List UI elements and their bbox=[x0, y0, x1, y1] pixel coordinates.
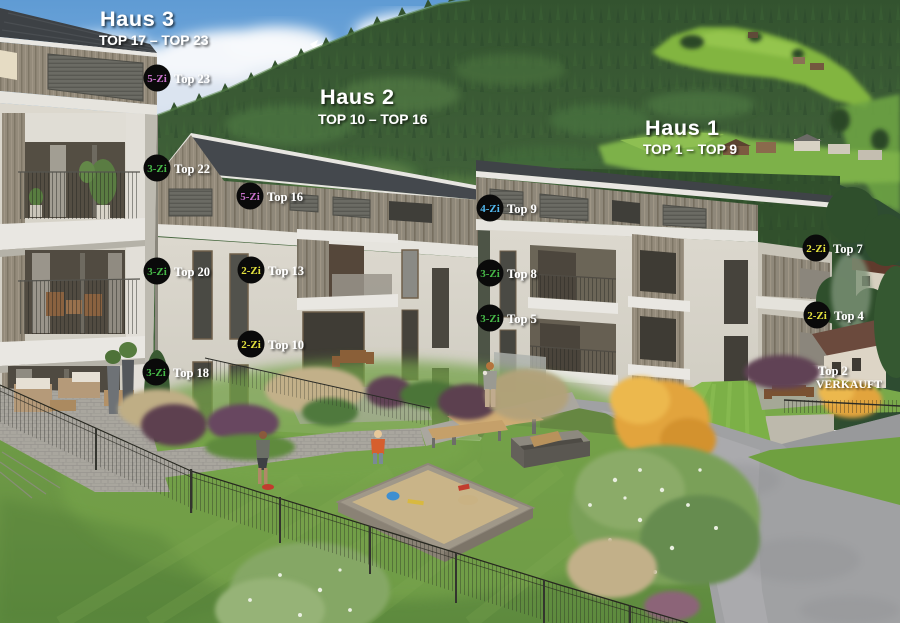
svg-text:VERKAUFT: VERKAUFT bbox=[816, 379, 882, 391]
svg-text:5-Zi: 5-Zi bbox=[240, 191, 260, 203]
svg-text:2-Zi: 2-Zi bbox=[807, 310, 827, 322]
svg-text:2-Zi: 2-Zi bbox=[241, 339, 261, 351]
svg-text:2-Zi: 2-Zi bbox=[806, 243, 826, 255]
svg-text:Top 13: Top 13 bbox=[268, 264, 304, 278]
svg-text:2-Zi: 2-Zi bbox=[241, 265, 261, 277]
svg-text:Haus 2: Haus 2 bbox=[320, 85, 395, 109]
svg-text:3-Zi: 3-Zi bbox=[146, 367, 166, 379]
svg-text:Top 20: Top 20 bbox=[174, 265, 210, 279]
svg-text:Top 9: Top 9 bbox=[507, 202, 537, 216]
svg-text:Haus 3: Haus 3 bbox=[100, 7, 175, 31]
svg-text:3-Zi: 3-Zi bbox=[480, 313, 500, 325]
svg-text:3-Zi: 3-Zi bbox=[147, 163, 167, 175]
svg-text:Top 2: Top 2 bbox=[818, 364, 848, 378]
svg-text:TOP 10 – TOP 16: TOP 10 – TOP 16 bbox=[318, 112, 428, 127]
svg-text:3-Zi: 3-Zi bbox=[480, 268, 500, 280]
svg-text:Top 4: Top 4 bbox=[834, 309, 865, 323]
svg-text:Haus 1: Haus 1 bbox=[645, 116, 720, 140]
svg-text:3-Zi: 3-Zi bbox=[147, 266, 167, 278]
svg-text:Top 10: Top 10 bbox=[268, 338, 304, 352]
svg-text:Top 22: Top 22 bbox=[174, 162, 210, 176]
svg-text:4-Zi: 4-Zi bbox=[480, 203, 500, 215]
svg-text:TOP 17 – TOP 23: TOP 17 – TOP 23 bbox=[99, 33, 209, 48]
svg-text:5-Zi: 5-Zi bbox=[147, 73, 167, 85]
svg-text:Top 5: Top 5 bbox=[507, 312, 537, 326]
svg-text:Top 23: Top 23 bbox=[174, 72, 210, 86]
svg-text:Top 18: Top 18 bbox=[173, 366, 209, 380]
svg-text:TOP 1 – TOP 9: TOP 1 – TOP 9 bbox=[643, 142, 737, 157]
svg-text:Top 8: Top 8 bbox=[507, 267, 537, 281]
svg-text:Top 16: Top 16 bbox=[267, 190, 303, 204]
svg-text:Top 7: Top 7 bbox=[833, 242, 863, 256]
